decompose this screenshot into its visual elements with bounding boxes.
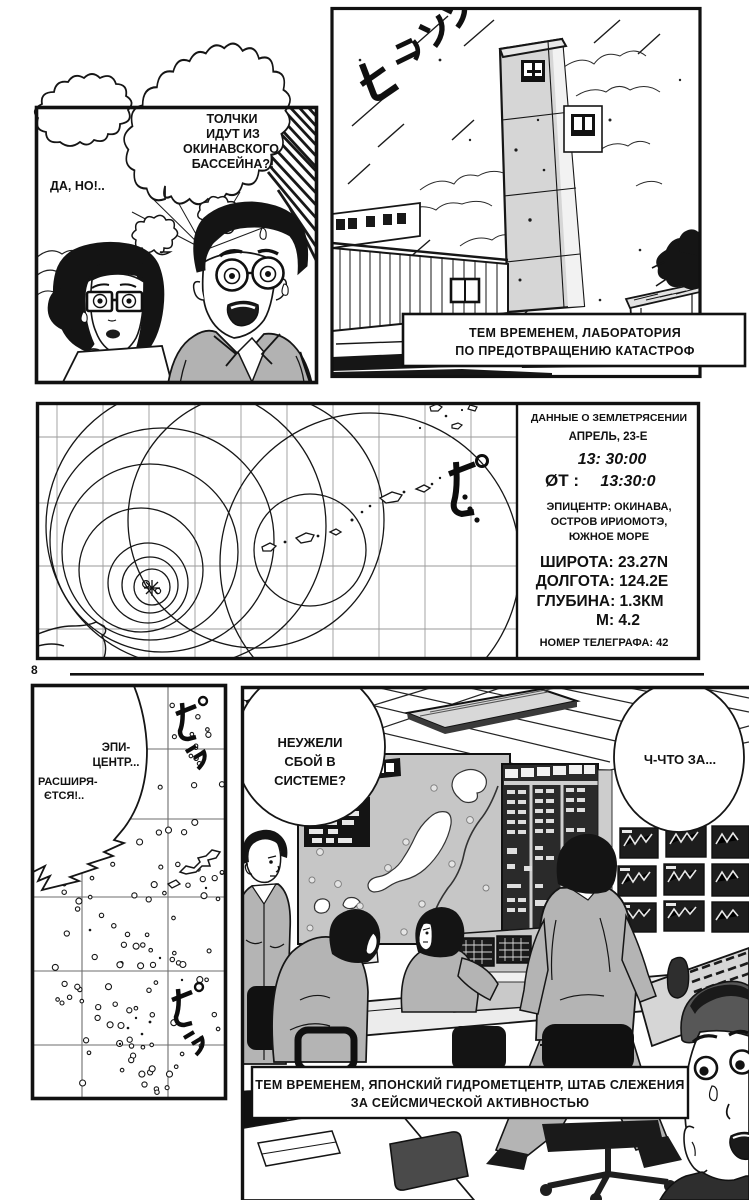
svg-text:8: 8 [31, 663, 38, 677]
svg-text:ОКИНАВСКОГО: ОКИНАВСКОГО [183, 142, 279, 156]
svg-text:СИСТЕМЕ?: СИСТЕМЕ? [274, 773, 346, 788]
svg-text:ОСТРОВ ИРИОМОТЭ,: ОСТРОВ ИРИОМОТЭ, [551, 516, 668, 528]
svg-text:ИДУТ ИЗ: ИДУТ ИЗ [206, 127, 260, 141]
svg-text:Ч-ЧТО ЗА...: Ч-ЧТО ЗА... [644, 752, 716, 767]
svg-text:ДАННЫЕ О ЗЕМЛЕТРЯСЕНИИ: ДАННЫЕ О ЗЕМЛЕТРЯСЕНИИ [531, 412, 687, 424]
svg-text:НЕУЖЕЛИ: НЕУЖЕЛИ [277, 735, 342, 750]
svg-text:ЭПИ-: ЭПИ- [102, 742, 131, 754]
svg-text:АПРЕЛЬ, 23-Е: АПРЕЛЬ, 23-Е [569, 431, 648, 443]
svg-text:ЦЕНТР...: ЦЕНТР... [93, 757, 140, 769]
svg-text:ТОЛЧКИ: ТОЛЧКИ [207, 112, 258, 126]
svg-text:ЗА СЕЙСМИЧЕСКОЙ АКТИВНОСТЬЮ: ЗА СЕЙСМИЧЕСКОЙ АКТИВНОСТЬЮ [351, 1095, 590, 1110]
svg-text:ЄТСЯ!..: ЄТСЯ!.. [44, 790, 84, 802]
svg-text:СБОЙ В: СБОЙ В [284, 754, 335, 769]
svg-text:ЭПИЦЕНТР: ОКИНАВА,: ЭПИЦЕНТР: ОКИНАВА, [546, 501, 671, 513]
svg-text:ПО ПРЕДОТВРАЩЕНИЮ КАТАСТРОФ: ПО ПРЕДОТВРАЩЕНИЮ КАТАСТРОФ [455, 344, 694, 358]
svg-text:13:30:0: 13:30:0 [600, 473, 655, 490]
svg-text:БАССЕЙНА?!: БАССЕЙНА?! [192, 156, 274, 171]
svg-text:ДОЛГОТА: 124.2Е: ДОЛГОТА: 124.2Е [536, 573, 669, 590]
svg-text:НОМЕР ТЕЛЕГРАФА: 42: НОМЕР ТЕЛЕГРАФА: 42 [540, 637, 669, 649]
svg-text:РАСШИРЯ-: РАСШИРЯ- [38, 776, 98, 788]
svg-text:ТЕМ ВРЕМЕНЕМ, ЯПОНСКИЙ ГИДРОМЕ: ТЕМ ВРЕМЕНЕМ, ЯПОНСКИЙ ГИДРОМЕТЦЕНТР, ШТ… [255, 1077, 684, 1092]
svg-text:ЮЖНОЕ МОРЕ: ЮЖНОЕ МОРЕ [569, 531, 649, 543]
svg-text:ГЛУБИНА: 1.3КМ: ГЛУБИНА: 1.3КМ [537, 593, 664, 610]
svg-text:ØТ :: ØТ : [545, 471, 579, 490]
svg-text:М: 4.2: М: 4.2 [596, 612, 640, 629]
svg-text:13: 30:00: 13: 30:00 [578, 451, 647, 468]
svg-text:ТЕМ ВРЕМЕНЕМ, ЛАБОРАТОРИЯ: ТЕМ ВРЕМЕНЕМ, ЛАБОРАТОРИЯ [469, 326, 681, 340]
svg-text:ШИРОТА: 23.27N: ШИРОТА: 23.27N [540, 554, 668, 571]
svg-text:ДА, НО!..: ДА, НО!.. [50, 179, 105, 193]
